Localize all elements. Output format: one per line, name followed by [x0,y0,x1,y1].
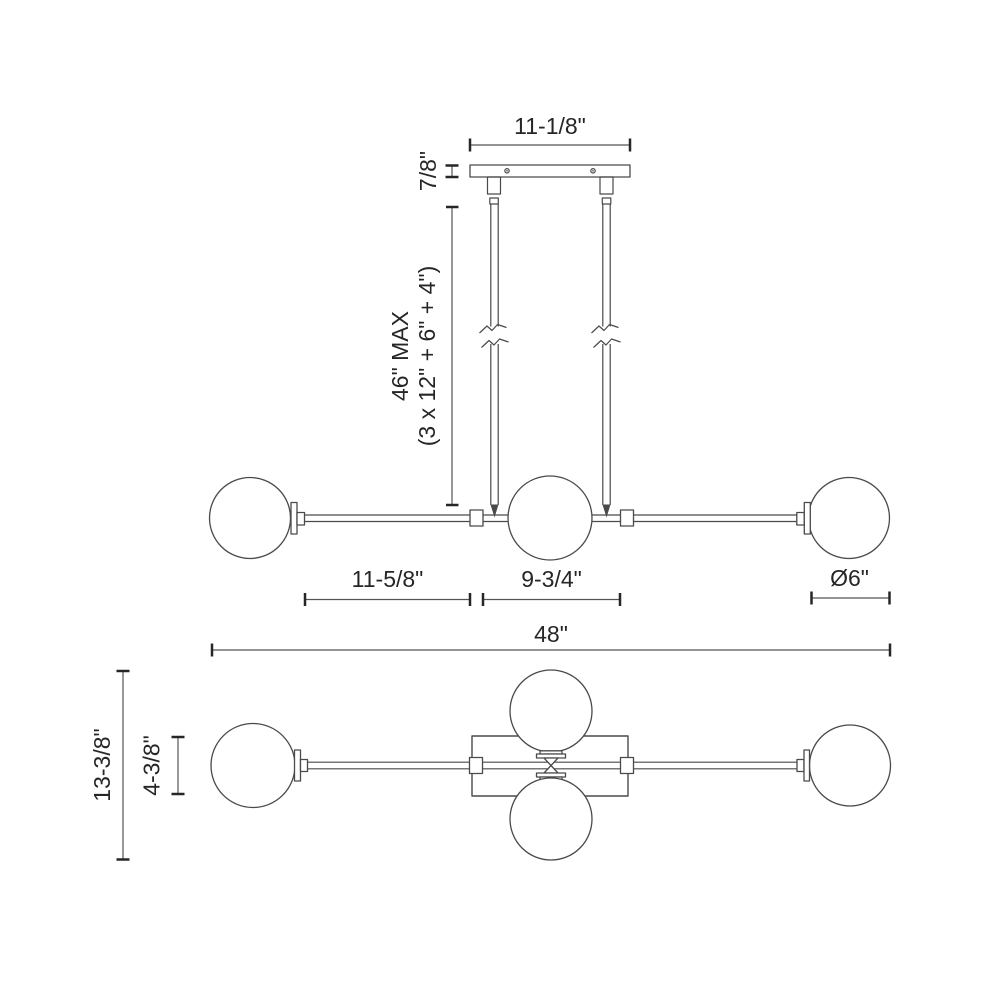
ceiling-canopy [470,165,630,177]
rod-stem [488,177,501,194]
canopy-height-label: 7/8" [415,151,441,191]
globe-diameter-dimension: Ø6" [812,565,890,605]
center-globes-plan [510,670,592,860]
suspension-max-label: 46" MAX [387,311,413,401]
body-depth-label-wrap: 4-3/8" [139,735,165,796]
dimension-drawing: 11-1/8" 7/8" [0,0,1000,1000]
left-globe [210,478,291,559]
right-globe-fitter [804,503,810,535]
right-globe-plan [810,725,891,806]
rod-collar [602,198,611,204]
rod-stem [600,177,613,194]
canopy-bar [470,165,630,177]
center-section-label: 9-3/4" [521,566,582,592]
body-depth-dimension: 4-3/8" [139,735,185,796]
center-section-dimension: 9-3/4" [483,566,620,606]
canopy-height-dimension: 7/8" [415,151,459,191]
arm-coupler [621,510,634,526]
canopy-width-dimension: 11-1/8" [470,113,630,152]
left-globe-fitter-neck [301,760,308,772]
break-mark [480,325,507,334]
canopy-screw-center [592,170,594,172]
overall-depth-label: 13-3/8" [89,728,115,801]
left-globe-plan [211,724,295,808]
canopy-width-label: 11-1/8" [514,113,586,139]
left-arm-dimension: 11-5/8" [305,566,470,606]
canopy-screw-center [506,170,508,172]
suspension-length-dimension: 46" MAX (3 x 12" + 6" + 4") [387,207,459,505]
arm-coupler [621,758,634,774]
right-globe-fitter-neck [797,760,804,772]
suspension-rod-left [480,177,509,518]
right-globe-fitter-neck [797,513,805,526]
overall-width-dimension: 48" [212,621,890,657]
spec-sheet-page: 11-1/8" 7/8" [0,0,1000,1000]
overall-depth-label-wrap: 13-3/8" [89,728,115,801]
left-globe-fitter-neck [297,513,305,526]
arm-coupler [470,510,483,526]
suspension-rod-right [592,177,621,518]
rod-collar [490,198,499,204]
left-globe-fitter [295,750,301,781]
lower-center-globe [510,778,592,860]
break-mark [592,325,619,334]
left-arm-label: 11-5/8" [352,566,424,592]
globes-front [210,476,890,560]
canopy-height-label-wrap: 7/8" [415,151,441,191]
suspension-rods [480,177,621,518]
globe-diameter-label: Ø6" [830,565,869,591]
plan-view: 13-3/8" 4-3/8" [89,670,891,860]
right-globe-fitter [804,750,810,781]
right-globe [809,478,890,559]
center-globe [508,476,592,560]
upper-center-globe [510,670,592,752]
overall-depth-dimension: 13-3/8" [89,671,130,860]
suspension-breakdown-label: (3 x 12" + 6" + 4") [414,266,440,446]
left-globe-fitter [291,503,297,535]
arm-coupler [470,758,483,774]
body-depth-label: 4-3/8" [139,735,165,796]
break-mark [594,339,621,348]
overall-width-label: 48" [534,621,568,647]
suspension-length-label-wrap: 46" MAX (3 x 12" + 6" + 4") [387,266,440,446]
front-view: 11-1/8" 7/8" [210,113,890,606]
break-mark [482,339,509,348]
